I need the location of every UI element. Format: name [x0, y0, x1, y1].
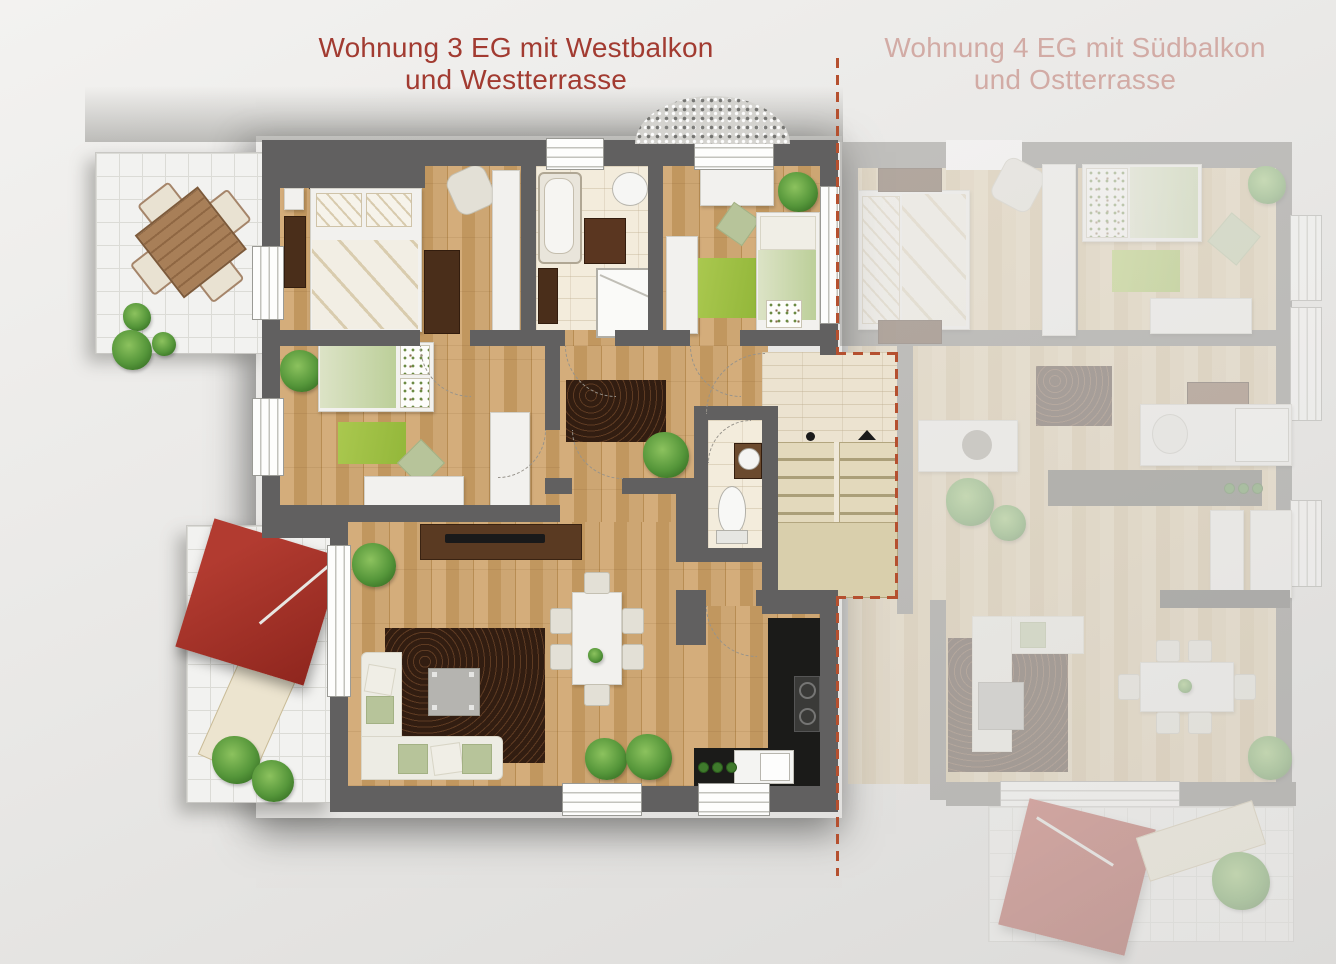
stair-lower-landing — [770, 522, 898, 598]
boundary-dash-top — [836, 58, 839, 354]
apartment3-title-line2: und Westterrasse — [266, 64, 766, 96]
wall-kitchen-left — [676, 590, 706, 645]
bed1-wardrobe — [492, 170, 520, 336]
floor-plan: Wohnung 3 EG mit Westbalkon und Westterr… — [0, 0, 1336, 964]
wall-mid-a — [280, 330, 420, 346]
wall-hall-b — [622, 478, 694, 494]
wall-dining-divider — [676, 494, 694, 562]
apt4-window-east-1 — [1290, 215, 1322, 301]
wall-left — [262, 140, 280, 538]
apt4-wardrobe — [1042, 164, 1076, 336]
apt4-window-east-3 — [1290, 500, 1322, 587]
bed1-bench — [424, 250, 460, 334]
bed1-pillow-2 — [366, 193, 412, 227]
window-top-bath — [546, 138, 604, 170]
bed2-desk — [700, 168, 774, 206]
apt4-rug-green — [1112, 250, 1180, 292]
dining-chair-bottom — [584, 684, 610, 706]
burner-2 — [799, 708, 816, 725]
apt4-desk — [1150, 298, 1252, 334]
apt4-plant-bedroom — [1248, 166, 1286, 204]
dining-chair-left-1 — [550, 608, 572, 634]
bed2-rug — [698, 258, 756, 318]
sofa-cushion-4 — [430, 742, 464, 776]
apartment4-title-line2: und Ostterrasse — [845, 64, 1305, 96]
hall-plant — [643, 432, 689, 478]
bed3-rug — [338, 422, 406, 464]
coffee-table-leg-2 — [469, 672, 474, 677]
dining-chair-top — [584, 572, 610, 594]
apt4-burner-dot-2 — [1238, 483, 1249, 494]
coffee-table-leg-4 — [469, 705, 474, 710]
stair-arrow-symbol — [858, 430, 876, 440]
apt4-nightstand-1 — [878, 168, 942, 192]
bed2-pillow — [760, 216, 816, 250]
apt4-burner-dot-1 — [1224, 483, 1235, 494]
apt4-wc-toilet — [962, 430, 992, 460]
sofa-cushion-3 — [398, 744, 428, 774]
wall-wc-left — [694, 406, 708, 562]
apt4-burner-dot-3 — [1252, 483, 1263, 494]
boundary-dash-jog-bottom — [836, 596, 898, 599]
bed1-pillow-1 — [316, 193, 362, 227]
apartment4-title-line1: Wohnung 4 EG mit Südbalkon — [845, 32, 1305, 64]
kitchen-sink-bowl — [760, 753, 790, 781]
stair-flight-left — [770, 442, 836, 524]
bath-toilet — [612, 172, 648, 206]
bed3-plant — [280, 350, 322, 392]
bath-shelf — [538, 268, 558, 324]
apt4-dining-chair-5 — [1118, 674, 1140, 700]
dining-chair-right-1 — [622, 608, 644, 634]
window-left-bed3 — [252, 398, 284, 476]
bed2-cushion — [766, 300, 802, 328]
wall-bath-bed2 — [648, 160, 663, 346]
bathtub-inner — [544, 178, 574, 254]
wall-mid-d — [740, 330, 838, 346]
entrance-landing — [762, 352, 897, 442]
apt4-hall-rug — [1036, 366, 1112, 426]
apt4-plant-balcony — [1212, 852, 1270, 910]
bed2-plant — [778, 172, 818, 212]
bed1-lamp-table — [284, 188, 304, 210]
apt4-dining-chair-4 — [1188, 712, 1212, 734]
bed3-pillow-2 — [400, 378, 430, 408]
apt4-wall-stair-side — [897, 346, 913, 614]
dining-table-plant — [588, 648, 603, 663]
wall-stair-bottom — [762, 598, 838, 614]
sofa-cushion-5 — [462, 744, 492, 774]
dining-table — [572, 592, 622, 685]
apt4-wall-left-top — [840, 142, 858, 346]
dining-chair-left-2 — [550, 644, 572, 670]
tv-screen — [445, 534, 545, 543]
apt4-tv-board — [1160, 590, 1290, 608]
apt4-dining-chair-1 — [1156, 640, 1180, 662]
kitchen-dot-1 — [698, 762, 709, 773]
stair-divider — [834, 442, 839, 522]
window-bottom-1 — [562, 783, 642, 816]
living-plant-1 — [585, 738, 627, 780]
kitchen-dot-3 — [726, 762, 737, 773]
window-left-bed1 — [252, 246, 284, 320]
apt4-dining-plant — [1178, 679, 1192, 693]
terrace-bush-1 — [123, 303, 151, 331]
balcony-plant-2 — [252, 760, 294, 802]
coffee-table-leg-3 — [432, 705, 437, 710]
wall-top-a — [262, 140, 425, 188]
apt4-fridge — [1210, 510, 1244, 598]
apt4-bed-blanket — [902, 194, 966, 326]
shower — [596, 268, 652, 338]
wall-mid-b — [470, 330, 565, 346]
apt4-dining-chair-2 — [1188, 640, 1212, 662]
burner-1 — [799, 682, 816, 699]
dining-chair-right-2 — [622, 644, 644, 670]
apt4-bath-toilet — [1152, 414, 1188, 454]
apartment4-title: Wohnung 4 EG mit Südbalkon und Ostterras… — [845, 32, 1305, 97]
living-plant-corner — [352, 543, 396, 587]
boundary-dash-stair-right — [895, 352, 898, 599]
bath-mat — [584, 218, 626, 264]
wall-mid-c — [615, 330, 690, 346]
window-bottom-2 — [698, 783, 770, 816]
kitchen-dot-2 — [712, 762, 723, 773]
apt4-cabinet — [1250, 510, 1292, 598]
apt4-plant-hall-1 — [946, 478, 994, 526]
apartment3-title: Wohnung 3 EG mit Westbalkon und Westterr… — [266, 32, 766, 97]
bed3-blanket — [320, 344, 396, 408]
wall-hall-a — [545, 478, 572, 494]
window-balcony-door — [327, 545, 351, 697]
wall-bed3-bottom — [280, 505, 560, 522]
apt4-shower — [1235, 408, 1289, 462]
terrace-bush-2 — [112, 330, 152, 370]
apt4-dining-chair-6 — [1234, 674, 1256, 700]
apt4-sideboard — [1187, 382, 1249, 406]
stair-dot-symbol — [806, 432, 815, 441]
sofa-cushion-1 — [366, 696, 394, 724]
apt4-plant-living — [1248, 736, 1292, 780]
living-plant-2 — [626, 734, 672, 780]
apt4-dining-chair-3 — [1156, 712, 1180, 734]
boundary-dash-jog-top — [836, 352, 898, 355]
apt4-bed-single-blanket — [1130, 167, 1198, 238]
wall-stair-left — [762, 412, 778, 600]
bed1-dresser — [284, 216, 306, 288]
apt4-window-east-2 — [1290, 307, 1322, 421]
terrace-bush-3 — [152, 332, 176, 356]
wall-bed1-bath — [521, 160, 536, 346]
boundary-dash-bottom — [836, 596, 839, 876]
apartment3-title-line1: Wohnung 3 EG mit Westbalkon — [266, 32, 766, 64]
bed2-wardrobe — [666, 236, 698, 334]
apt4-nightstand-2 — [878, 320, 942, 344]
wc-toilet-bowl — [718, 486, 746, 534]
wall-bed3-right — [545, 346, 560, 430]
apt4-sofa-cushion-1 — [1020, 622, 1046, 648]
wc-toilet-tank — [716, 530, 748, 544]
apt4-plant-hall-2 — [990, 505, 1026, 541]
coffee-table-leg-1 — [432, 672, 437, 677]
bed1-blanket — [312, 240, 418, 329]
apt4-coffee-table — [978, 682, 1024, 730]
sofa-cushion-2 — [364, 664, 396, 696]
apt4-bed-single-pillow — [1086, 168, 1128, 238]
apt4-wall-living-left — [930, 600, 946, 800]
apt4-bed-pillows — [862, 196, 900, 324]
bed3-desk — [364, 476, 464, 508]
